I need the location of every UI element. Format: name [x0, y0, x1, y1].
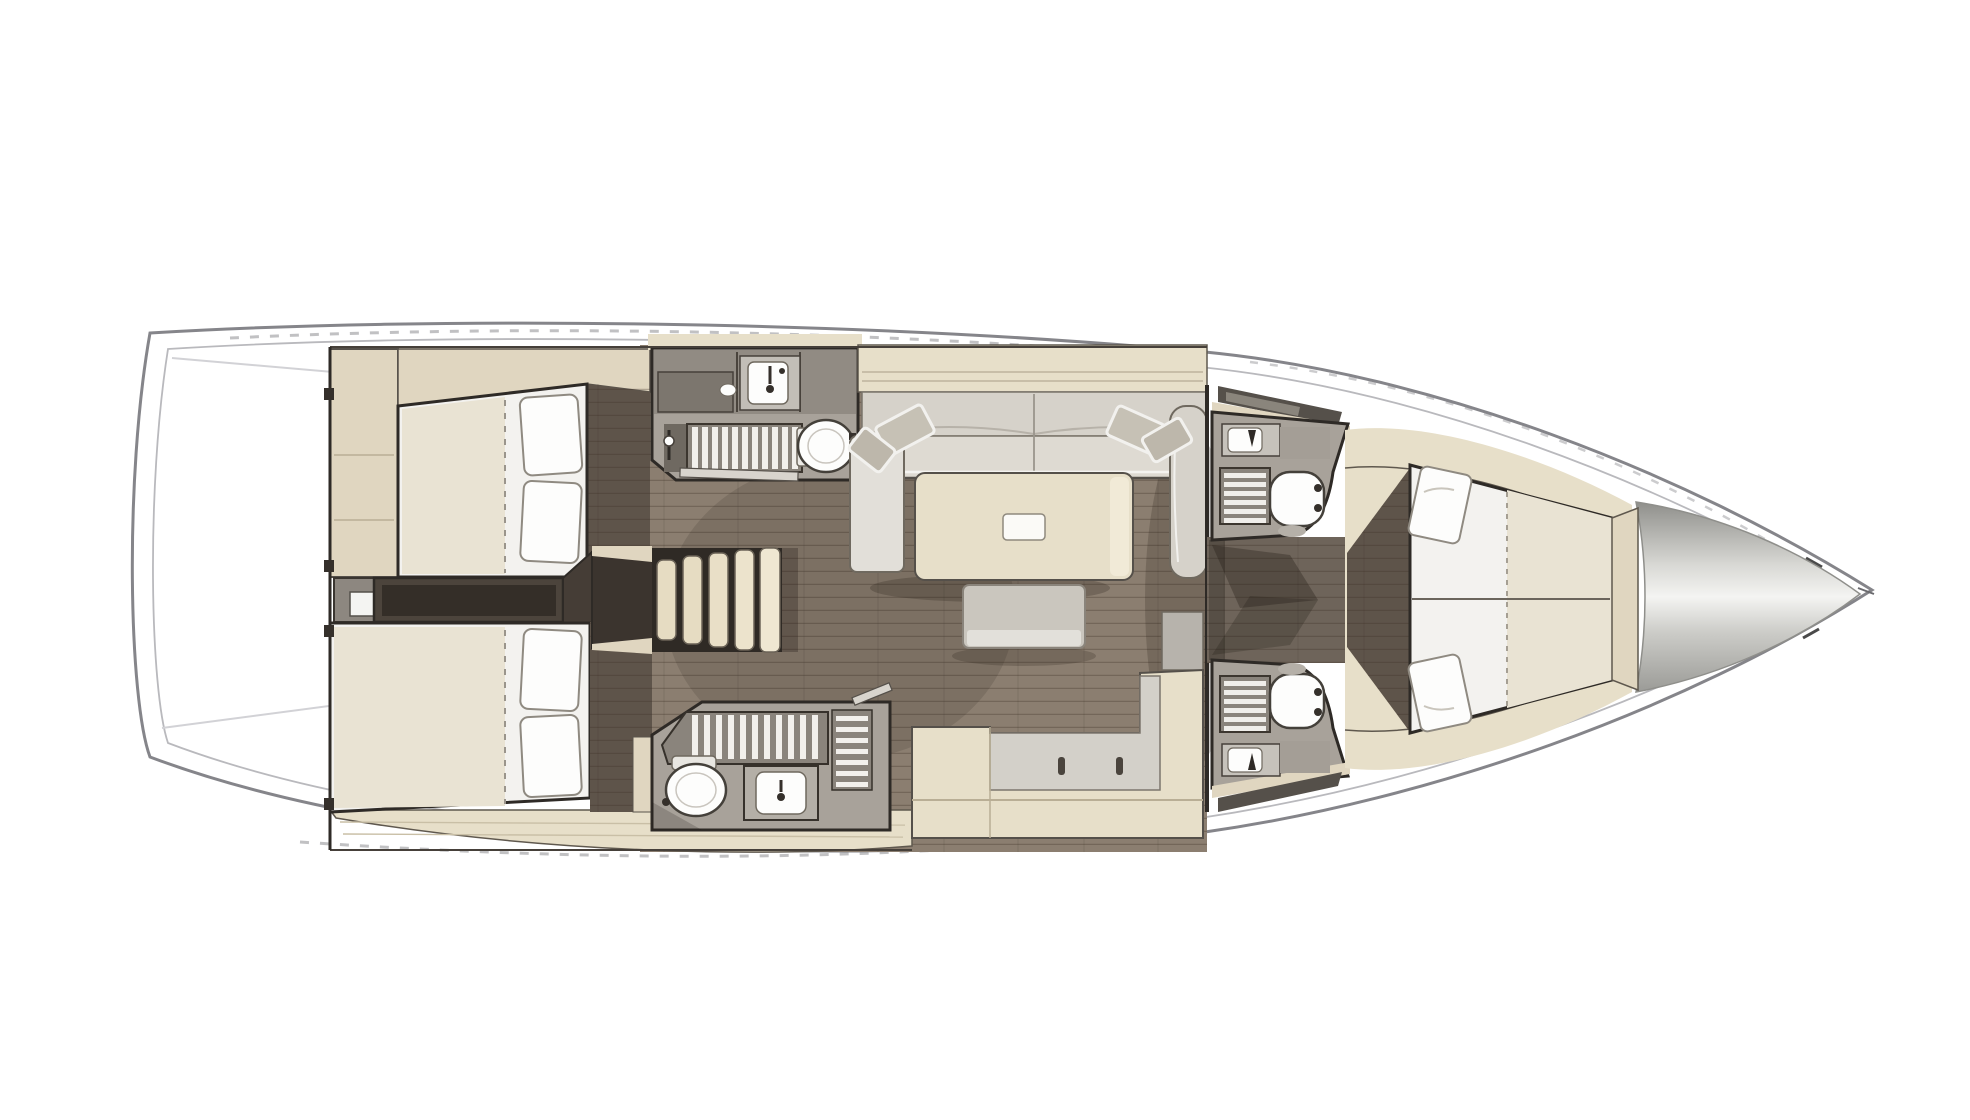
toilet-base [1278, 525, 1306, 537]
salon-table [915, 473, 1133, 580]
toilet-hinge-1 [1314, 688, 1322, 696]
cabin-cabinet [633, 737, 652, 812]
sofa-back-shelf [858, 345, 1207, 392]
sink-basin [1228, 428, 1262, 452]
sink-basin [1228, 748, 1262, 772]
sink-tap-knob [779, 368, 785, 374]
shower-grate-slats [692, 427, 798, 469]
bed-foot-platform [1612, 508, 1638, 690]
toilet-base [1278, 663, 1306, 675]
toilet-hinge-2 [1314, 708, 1322, 716]
toilet-bowl [666, 764, 726, 816]
nav-cabinet [1162, 612, 1203, 670]
cabinet-knob [720, 384, 736, 396]
counter-right [1280, 427, 1330, 459]
corridor-recess [382, 585, 556, 616]
bed-mattress-textured [334, 627, 505, 808]
forward-corridor [1207, 537, 1347, 663]
landing-dark [592, 552, 654, 648]
table-edge-strip [1110, 477, 1129, 576]
toilet-hinge-1 [1314, 484, 1322, 492]
galley-handle-2 [1116, 757, 1123, 775]
counter-right [1280, 741, 1330, 773]
toilet-bowl [1270, 674, 1324, 728]
corridor-end-hatch [350, 592, 374, 616]
steps-treads [657, 548, 780, 652]
aft-port-cabin [330, 347, 650, 577]
bed-mattress-textured [402, 397, 505, 574]
bench-front [967, 630, 1081, 646]
shower-head [664, 436, 674, 446]
boat-floorplan: Rendered floor plan of a sailboat: two a… [0, 0, 1970, 1120]
steps-shadow [782, 548, 798, 652]
toilet-bowl [798, 420, 854, 472]
sink-drain [777, 793, 785, 801]
table-inlay [1003, 514, 1045, 540]
shower-column [664, 424, 687, 472]
galley-handle-1 [1058, 757, 1065, 775]
toilet-hinge-2 [1314, 504, 1322, 512]
floorplan-svg [0, 0, 1970, 1120]
sink-drain [766, 385, 774, 393]
wardrobe [330, 349, 398, 577]
salon-bench [963, 585, 1085, 648]
toilet-flush [662, 798, 670, 806]
bulkhead-shadow [1209, 540, 1225, 660]
toilet-bowl [1270, 472, 1324, 526]
companionway [592, 546, 798, 654]
port-head [648, 334, 862, 481]
